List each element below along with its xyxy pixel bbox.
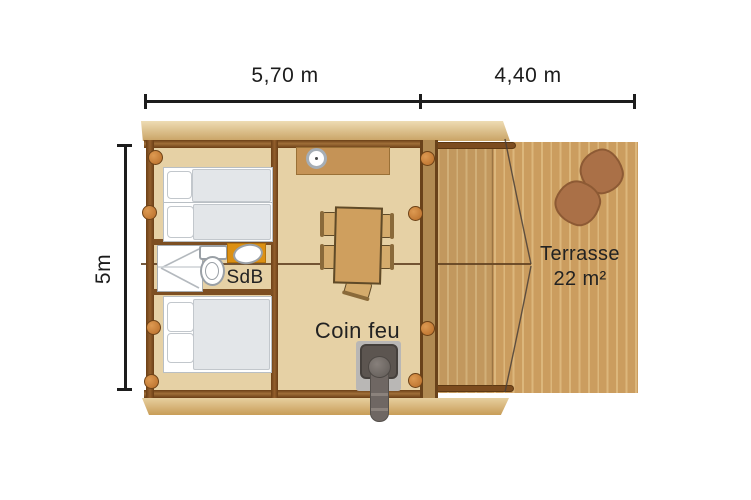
post-knob [408, 373, 423, 388]
twin-bed-1-mattress [192, 169, 271, 202]
fire-corner-label: Coin feu [300, 318, 415, 344]
twin-bed-2-pillow [167, 206, 194, 238]
chair-backrest [320, 244, 324, 270]
double-bed-pillow-1 [167, 302, 194, 332]
post-knob [144, 374, 159, 389]
platform-top [141, 121, 510, 141]
floor-plan: 5,70 m 4,40 m 5m [0, 0, 751, 500]
double-bed-mattress [193, 299, 270, 370]
dim-tick [144, 94, 147, 109]
terrace-wall [420, 140, 438, 398]
bathroom-label: SdB [215, 267, 275, 289]
platform-bottom [142, 398, 509, 415]
chair-backrest [390, 213, 394, 239]
chair-backrest [390, 244, 394, 270]
post-knob [408, 206, 423, 221]
shower-door-lines [158, 246, 202, 291]
double-bed-pillow-2 [167, 333, 194, 363]
terrace-name-label: Terrasse [530, 243, 630, 266]
dim-label-cabin-width: 5,70 m [185, 64, 385, 88]
dim-tick [117, 144, 132, 147]
stove-pipe-elbow [368, 356, 391, 378]
dim-label-terrace-width: 4,40 m [428, 64, 628, 88]
dim-tick [117, 388, 132, 391]
dim-line-left [124, 145, 127, 391]
terrace-area-label: 22 m² [532, 268, 628, 291]
twin-bed-1-pillow [167, 171, 192, 199]
dim-tick [633, 94, 636, 109]
post-knob [148, 150, 163, 165]
post-knob [146, 320, 161, 335]
dim-line-top [145, 100, 636, 103]
burner-center-dot [315, 157, 318, 160]
post-knob [142, 205, 157, 220]
chair-backrest [320, 211, 324, 237]
post-knob [420, 321, 435, 336]
burner-icon [306, 148, 327, 169]
dim-tick [419, 94, 422, 109]
dining-table [333, 206, 383, 284]
left-wall [146, 140, 154, 398]
post-knob [420, 151, 435, 166]
dim-label-depth: 5m [92, 219, 116, 319]
terrace-covered-area [430, 142, 492, 393]
twin-bed-2-mattress [193, 204, 271, 240]
shower [157, 245, 203, 292]
